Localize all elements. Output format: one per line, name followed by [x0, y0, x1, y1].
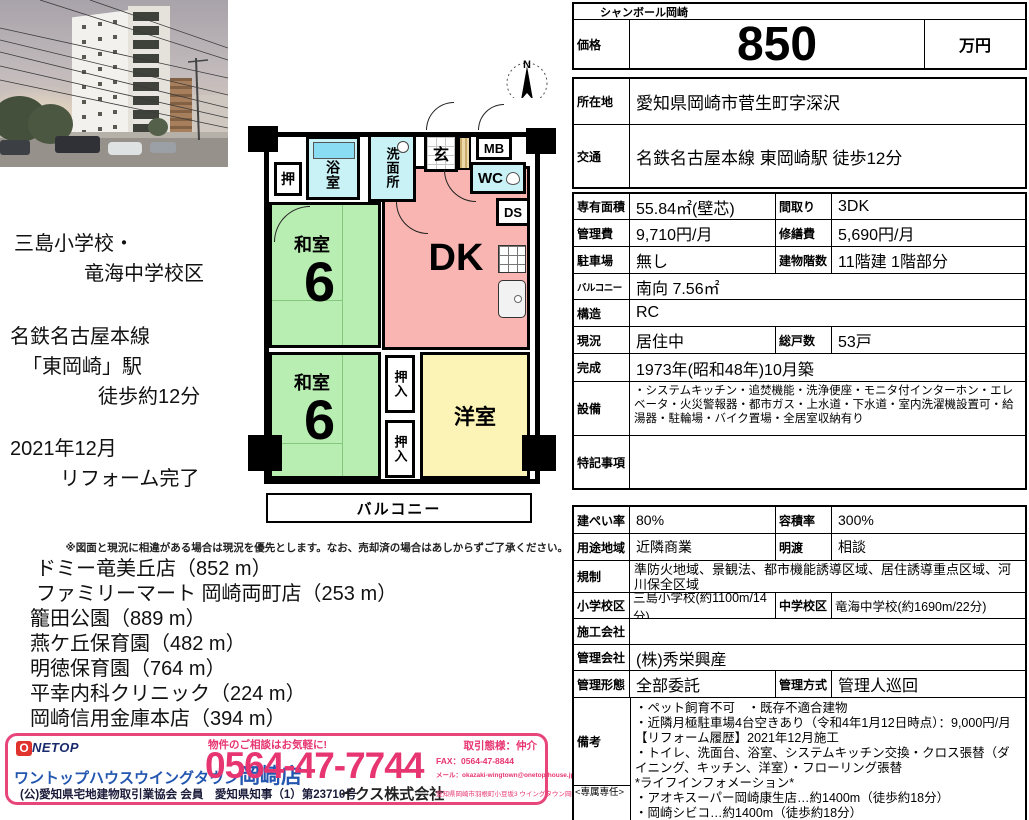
license-text: (公)愛知県宅地建物取引業協会 会員 愛知県知事（1）第23710号: [20, 786, 357, 802]
location-table: 所在地 愛知県岡崎市菅生町字深沢 交通 名鉄名古屋本線 東岡崎駅 徒歩12分: [572, 77, 1027, 189]
oshiire-label: 押入: [391, 435, 410, 463]
far-value: 300%: [832, 507, 1025, 533]
row-regulation: 規制 準防火地域、景観法、都市機能誘導区域、居住誘導重点区域、河川保全区域: [574, 561, 1025, 593]
note-line: 徒歩約12分: [98, 380, 200, 409]
mail-text: メール：okazaki-wingtown@onetop-house.jp: [436, 769, 575, 779]
exclusive-agency-label: <専属専任>: [574, 786, 630, 820]
building-name-row: シャンボール岡崎: [574, 4, 1025, 20]
price-label: 価格: [574, 20, 630, 68]
mgmt-fee-value: 9,710円/月: [630, 220, 776, 246]
room-washroom: 洗面所: [368, 134, 416, 202]
floor-plan: DK 押 浴室 洗面所 玄 MB WC DS: [248, 98, 560, 540]
bath-label: 浴室: [323, 160, 343, 190]
regulation-value: 準防火地域、景観法、都市機能誘導区域、居住誘導重点区域、河川保全区域: [630, 561, 1025, 592]
sink-drain-icon: [514, 295, 522, 303]
area-value: 55.84㎡(壁芯): [630, 194, 776, 219]
floors-value: 11階建 1階部分: [832, 247, 1025, 273]
deal-type-text: 取引態様：仲介: [464, 738, 538, 753]
equipment-value: ・システムキッチン・追焚機能・洗浄便座・モニタ付インターホン・エレベータ・火災警…: [630, 382, 1025, 435]
mgmt-form-label: 管理形態: [574, 671, 630, 697]
details-table: 専有面積 55.84㎡(壁芯) 間取り 3DK 管理費 9,710円/月 修繕費…: [572, 192, 1027, 490]
building-photo: [0, 0, 228, 167]
elementary-label: 小学校区: [574, 593, 630, 618]
mgmt-method-value: 管理人巡回: [832, 671, 1025, 697]
zoning-label: 用途地域: [574, 534, 630, 560]
junior-value: 竜海中学校(約1690m/22分): [832, 593, 1025, 618]
zoning-table: 建ぺい率 80% 容積率 300% 用途地域 近隣商業 明渡 相談 規制 準防火…: [572, 505, 1027, 820]
area-label: 専有面積: [574, 194, 630, 219]
balcony-spec-label: バルコニー: [574, 274, 630, 299]
handover-value: 相談: [832, 534, 1025, 560]
row-school-districts: 小学校区 三島小学校(約1100m/14分) 中学校区 竜海中学校(約1690m…: [574, 593, 1025, 619]
row-parking-floors: 駐車場 無し 建物階数 11階建 1階部分: [574, 247, 1025, 274]
row-mgmt-form: 管理形態 全部委託 管理方式 管理人巡回: [574, 671, 1025, 698]
row-location: 所在地 愛知県岡崎市菅生町字深沢: [574, 79, 1025, 125]
row-fees: 管理費 9,710円/月 修繕費 5,690円/月: [574, 220, 1025, 247]
room-duct-space: DS: [496, 198, 530, 226]
flyer-page: N DK 押 浴室 洗面所 玄 MB WC: [0, 0, 1029, 820]
door-arc-icon: [426, 102, 454, 130]
parking-value: 無し: [630, 247, 776, 273]
balcony-label: バルコニー: [357, 498, 442, 519]
access-value: 名鉄名古屋本線 東岡崎駅 徒歩12分: [630, 125, 1025, 187]
room-oshiire-upper: 押入: [385, 355, 415, 413]
wall-pillar: [248, 126, 278, 152]
layout-label: 間取り: [776, 194, 832, 219]
location-label: 所在地: [574, 79, 630, 124]
special-notes-label: 特記事項: [574, 436, 630, 488]
balcony-spec-value: 南向 7.56㎡: [630, 274, 1025, 299]
remarks-label-column: 備考 <専属専任>: [574, 698, 631, 820]
phone-number: 0564-47-7744: [205, 745, 423, 787]
room-entrance: 玄: [424, 134, 458, 172]
room-meter-box: MB: [476, 136, 512, 160]
parking-label: 駐車場: [574, 247, 630, 273]
wall-pillar: [248, 435, 282, 471]
price-unit: 万円: [925, 20, 1025, 68]
regulation-label: 規制: [574, 561, 630, 592]
mgmt-fee-label: 管理費: [574, 220, 630, 246]
photo-power-lines: [0, 0, 228, 167]
building-name: シャンボール岡崎: [574, 4, 1025, 19]
row-equipment: 設備 ・システムキッチン・追焚機能・洗浄便座・モニタ付インターホン・エレベータ・…: [574, 382, 1025, 436]
location-value: 愛知県岡崎市菅生町字深沢: [630, 79, 1025, 124]
japanese-room-size: 6: [304, 249, 335, 314]
built-label: 完成: [574, 354, 630, 381]
disclaimer-text: ※図面と現況に相違がある場合は現況を優先とします。なお、売却済の場合はあしからず…: [58, 540, 568, 555]
mgmt-company-label: 管理会社: [574, 645, 630, 670]
row-coverage-far: 建ぺい率 80% 容積率 300%: [574, 507, 1025, 534]
toilet-icon: [506, 172, 520, 185]
facility-item: 明徳保育園（764 m）: [30, 657, 397, 682]
facility-item: ファミリーマート 岡崎両町店（253 m）: [30, 582, 397, 607]
room-oshiire-lower: 押入: [385, 420, 415, 478]
washroom-label: 洗面所: [383, 147, 402, 189]
facility-item: 岡崎信用金庫本店（394 m）: [30, 707, 397, 732]
tatami-line: [342, 355, 343, 479]
row-status-units: 現況 居住中 総戸数 53戸: [574, 327, 1025, 354]
equipment-label: 設備: [574, 382, 630, 435]
facility-item: 平幸内科クリニック（224 m）: [30, 682, 397, 707]
room-dk-label: DK: [429, 237, 484, 280]
room-bath: 浴室: [306, 136, 360, 200]
company-name: イクス株式会社: [340, 783, 444, 804]
door-arc-icon: [478, 104, 504, 130]
agency-footer: ONETOP ワントップハウスウイングタウン岡崎店 物件のご相談はお気軽に! 0…: [5, 733, 548, 805]
status-label: 現況: [574, 327, 630, 353]
washbasin-icon: [397, 141, 409, 153]
handover-label: 明渡: [776, 534, 832, 560]
floors-label: 建物階数: [776, 247, 832, 273]
logo-text: NETOP: [32, 740, 79, 755]
fax-text: FAX：0564-47-8844: [436, 755, 514, 767]
structure-value: RC: [630, 300, 1025, 326]
row-balcony: バルコニー 南向 7.56㎡: [574, 274, 1025, 300]
kitchen-sink-icon: [498, 280, 526, 318]
room-western: 洋室: [420, 352, 530, 479]
mgmt-form-value: 全部委託: [630, 671, 776, 697]
logo-mark-icon: O: [16, 741, 32, 756]
closet-label: 押: [281, 169, 295, 189]
duct-label: DS: [504, 205, 522, 220]
note-line: 2021年12月: [10, 432, 117, 461]
remarks-value: ・ペット飼育不可 ・既存不適合建物 ・近隣月極駐車場4台空きあり（令和4年1月1…: [631, 698, 1025, 820]
stove-icon: [498, 245, 526, 273]
structure-label: 構造: [574, 300, 630, 326]
builder-label: 施工会社: [574, 619, 630, 644]
row-special-notes: 特記事項: [574, 436, 1025, 488]
western-room-label: 洋室: [454, 401, 496, 431]
builder-value: [630, 619, 1025, 644]
row-zoning-handover: 用途地域 近隣商業 明渡 相談: [574, 534, 1025, 561]
units-label: 総戸数: [776, 327, 832, 353]
note-line: 名鉄名古屋本線: [10, 320, 150, 349]
tatami-line: [342, 205, 343, 348]
row-builder: 施工会社: [574, 619, 1025, 645]
row-mgmt-company: 管理会社 (株)秀栄興産: [574, 645, 1025, 671]
repair-fee-label: 修繕費: [776, 220, 832, 246]
elementary-value: 三島小学校(約1100m/14分): [630, 593, 776, 618]
room-closet-oshi: 押: [274, 162, 302, 196]
oshiire-label: 押入: [391, 370, 410, 398]
price-row: 価格 850 万円: [574, 20, 1025, 68]
row-structure: 構造 RC: [574, 300, 1025, 327]
room-toilet: WC: [470, 162, 526, 194]
mgmt-method-label: 管理方式: [776, 671, 832, 697]
access-label: 交通: [574, 125, 630, 187]
coverage-label: 建ぺい率: [574, 507, 630, 533]
balcony-strip: バルコニー: [266, 493, 532, 523]
nearby-facilities-list: ドミー竜美丘店（852 m） ファミリーマート 岡崎両町店（253 m） 籠田公…: [30, 557, 397, 732]
layout-value: 3DK: [832, 194, 1025, 219]
built-value: 1973年(昭和48年)10月築: [630, 354, 1025, 381]
note-line: 三島小学校・: [14, 227, 134, 256]
coverage-value: 80%: [630, 507, 776, 533]
price-value: 850: [630, 20, 925, 68]
toilet-label: WC: [478, 170, 503, 187]
bathtub-icon: [313, 142, 355, 159]
far-label: 容積率: [776, 507, 832, 533]
repair-fee-value: 5,690円/月: [832, 220, 1025, 246]
agency-address: 愛知県岡崎市羽根町小豆坂3 ウイングタウン岡崎1F: [436, 788, 586, 798]
row-area-layout: 専有面積 55.84㎡(壁芯) 間取り 3DK: [574, 194, 1025, 220]
status-value: 居住中: [630, 327, 776, 353]
mgmt-company-value: (株)秀栄興産: [630, 645, 1025, 670]
meter-box-label: MB: [484, 141, 504, 156]
zoning-value: 近隣商業: [630, 534, 776, 560]
room-japanese-lower: 和室 6: [269, 352, 381, 479]
price-table: シャンボール岡崎 価格 850 万円: [572, 2, 1027, 70]
note-line: 竜海中学校区: [84, 257, 204, 286]
special-notes-value: [630, 436, 1025, 488]
note-line: リフォーム完了: [60, 462, 199, 491]
japanese-room-size: 6: [304, 387, 335, 452]
entrance-label: 玄: [433, 141, 449, 165]
junior-label: 中学校区: [776, 593, 832, 618]
facility-item: ドミー竜美丘店（852 m）: [30, 557, 397, 582]
onetop-logo: ONETOP: [16, 739, 79, 757]
row-built: 完成 1973年(昭和48年)10月築: [574, 354, 1025, 382]
remarks-label: 備考: [574, 698, 630, 786]
row-access: 交通 名鉄名古屋本線 東岡崎駅 徒歩12分: [574, 125, 1025, 187]
note-line: 「東岡崎」駅: [22, 350, 142, 379]
facility-item: 籠田公園（889 m）: [30, 607, 397, 632]
wall-pillar: [526, 128, 556, 154]
units-value: 53戸: [832, 327, 1025, 353]
facility-item: 燕ケ丘保育園（482 m）: [30, 632, 397, 657]
row-remarks: 備考 <専属専任> ・ペット飼育不可 ・既存不適合建物 ・近隣月極駐車場4台空き…: [574, 698, 1025, 820]
wall-pillar: [522, 435, 556, 471]
